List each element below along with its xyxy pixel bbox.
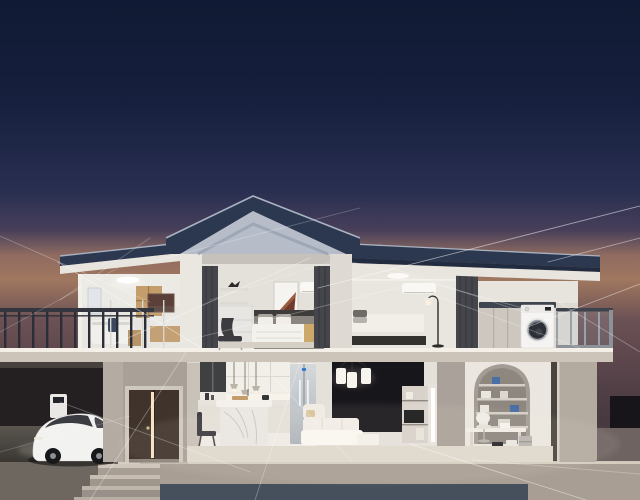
fridge-logo — [302, 368, 306, 371]
washing-machine — [521, 305, 554, 348]
kettle — [262, 395, 269, 400]
car-headlight — [34, 437, 43, 440]
smart-home-hero-image — [0, 0, 640, 500]
cutting-board — [232, 396, 248, 400]
washer-display — [545, 307, 551, 311]
right-wing — [352, 244, 613, 348]
curtain-right — [314, 266, 330, 348]
dark-plinth — [118, 484, 528, 500]
right-bed — [352, 310, 426, 345]
balcony-glazing — [78, 306, 188, 348]
gable-column-right — [330, 254, 352, 348]
garage — [0, 362, 118, 467]
charger-screen — [53, 397, 64, 403]
smart-home-render — [0, 0, 640, 500]
floor-slab — [0, 348, 613, 362]
garage-pier — [103, 362, 123, 462]
gable-column-left — [180, 254, 202, 348]
dark-hedge — [610, 396, 640, 430]
